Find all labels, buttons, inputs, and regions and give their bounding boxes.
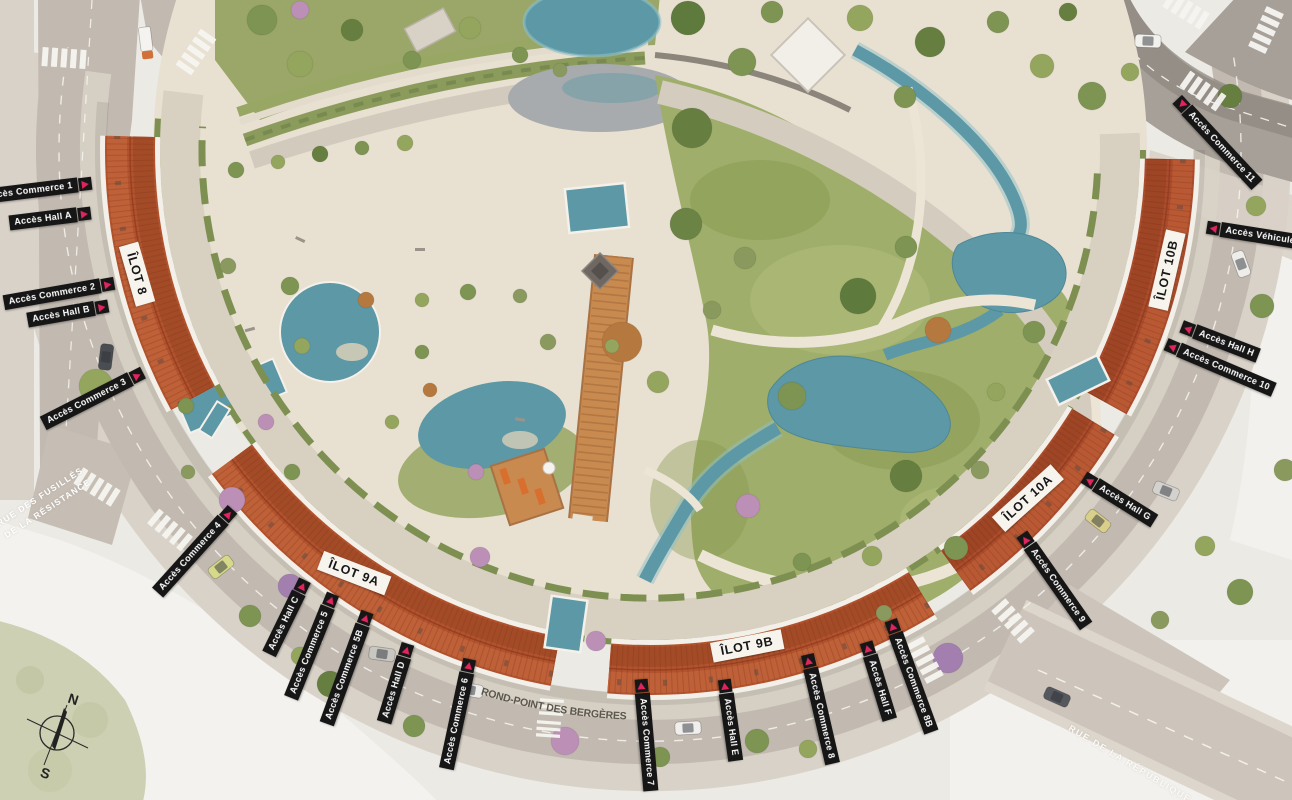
site-plan-map: ROND-POINT DES BERGÈRES N S RUE DES FUSI… (0, 0, 1292, 800)
site-plan-rendering: ROND-POINT DES BERGÈRES N S (0, 0, 1292, 800)
